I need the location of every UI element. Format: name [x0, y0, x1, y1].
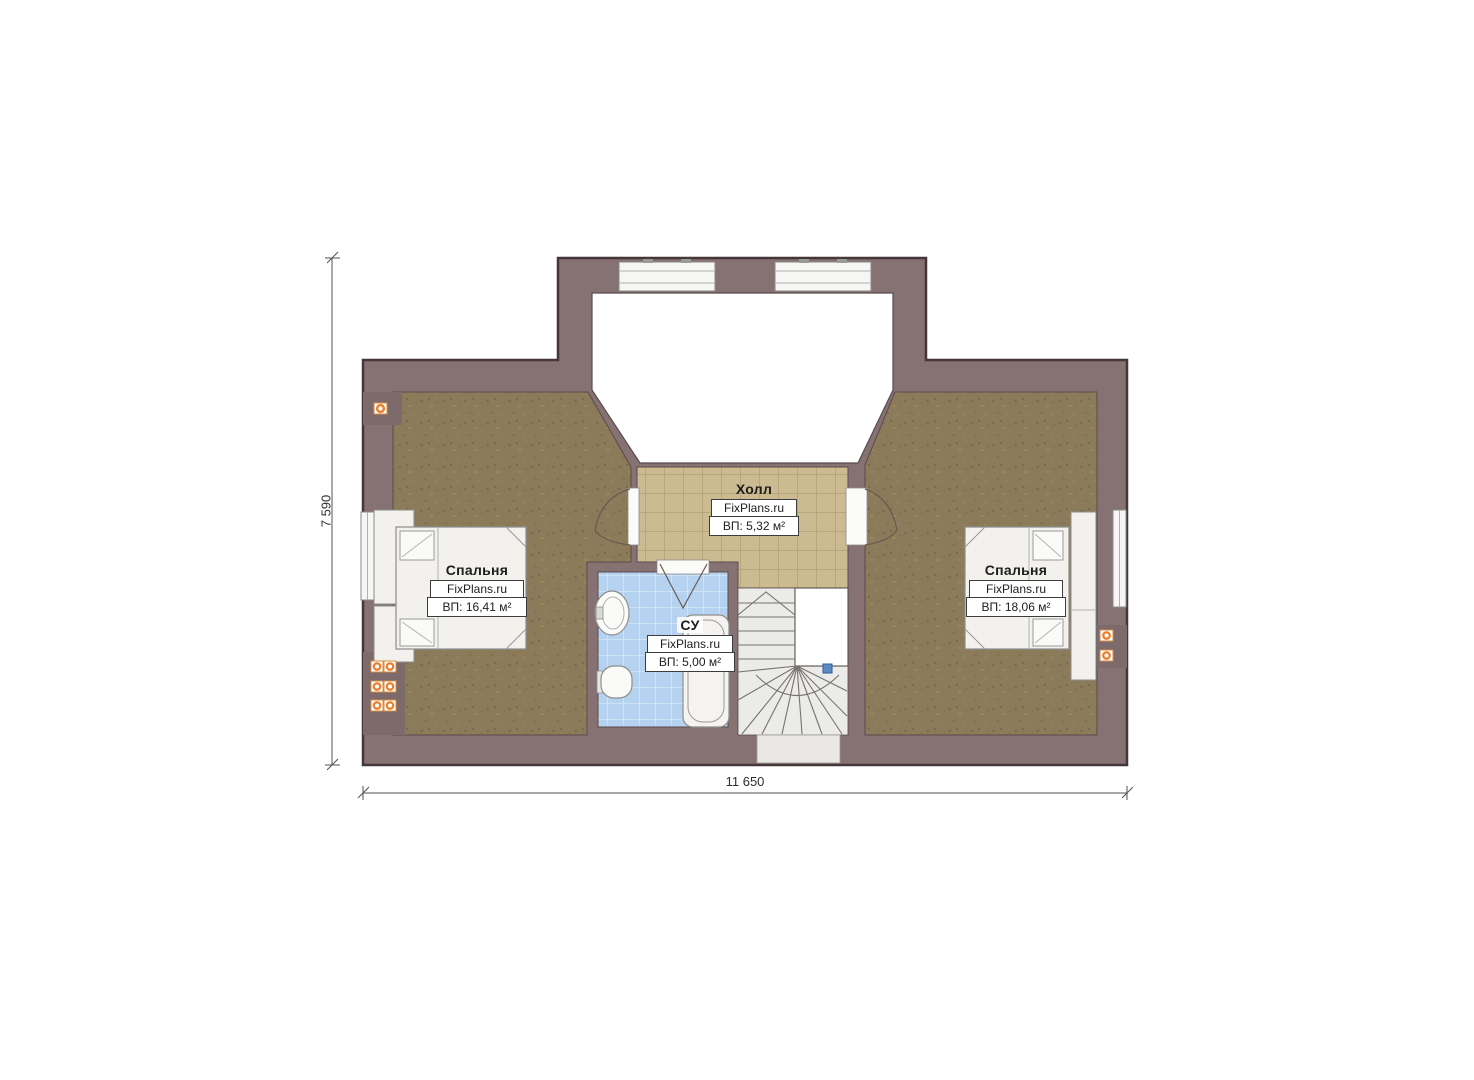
- power-outlet-icon: [374, 403, 387, 414]
- room-area: ВП: 16,41 м²: [427, 597, 527, 617]
- room-label-bathroom: СУ FixPlans.ru ВП: 5,00 м²: [645, 617, 735, 672]
- bottom-wall-niche: [757, 735, 840, 763]
- dormer-window-left: [619, 259, 715, 291]
- stair-direction-marker: [823, 664, 832, 673]
- attic-void-area: [592, 293, 893, 463]
- power-outlet-icon: [371, 661, 396, 711]
- dormer-window-right: [775, 259, 871, 291]
- toilet-symbol: [597, 666, 632, 698]
- sink-symbol: [595, 591, 629, 635]
- room-name: Спальня: [985, 562, 1048, 578]
- room-name: СУ: [677, 617, 702, 633]
- brand-watermark: FixPlans.ru: [969, 580, 1063, 598]
- room-label-hall: Холл FixPlans.ru ВП: 5,32 м²: [709, 481, 799, 536]
- window-right-wall: [1113, 510, 1126, 607]
- brand-watermark: FixPlans.ru: [430, 580, 524, 598]
- room-label-bedroom-right: Спальня FixPlans.ru ВП: 18,06 м²: [966, 562, 1066, 617]
- room-name: Холл: [736, 481, 772, 497]
- room-name: Спальня: [446, 562, 509, 578]
- floor-plan-drawing: [0, 0, 1474, 1080]
- brand-watermark: FixPlans.ru: [711, 499, 797, 517]
- overall-height-dimension: 7 590: [319, 495, 334, 528]
- room-label-bedroom-left: Спальня FixPlans.ru ВП: 16,41 м²: [427, 562, 527, 617]
- wardrobe-symbol: [1071, 512, 1096, 680]
- room-area: ВП: 5,00 м²: [645, 652, 735, 672]
- room-area: ВП: 5,32 м²: [709, 516, 799, 536]
- brand-watermark: FixPlans.ru: [647, 635, 733, 653]
- window-left-wall: [361, 512, 374, 600]
- overall-width-dimension: 11 650: [726, 774, 765, 789]
- room-area: ВП: 18,06 м²: [966, 597, 1066, 617]
- floor-plan-page: Спальня FixPlans.ru ВП: 16,41 м² Холл Fi…: [0, 0, 1474, 1080]
